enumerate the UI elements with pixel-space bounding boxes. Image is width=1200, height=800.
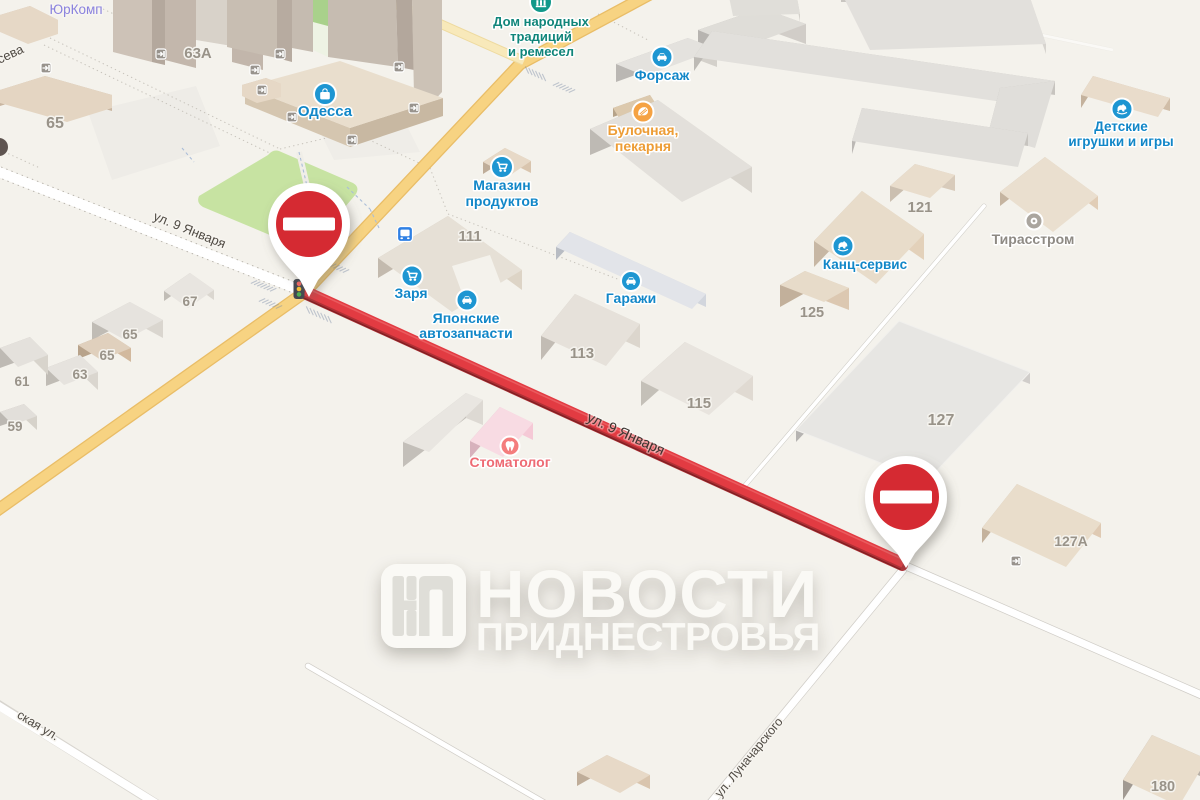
svg-text:автозапчасти: автозапчасти	[419, 325, 512, 341]
svg-text:игрушки и игры: игрушки и игры	[1068, 134, 1173, 149]
svg-text:121: 121	[907, 199, 932, 216]
svg-text:180: 180	[1151, 779, 1175, 795]
svg-text:59: 59	[7, 419, 22, 434]
svg-text:127А: 127А	[1054, 533, 1087, 549]
svg-text:Дом народных: Дом народных	[493, 14, 589, 29]
svg-text:ЮрКомп: ЮрКомп	[49, 2, 102, 17]
svg-text:Гаражи: Гаражи	[606, 290, 656, 306]
svg-text:традиций: традиций	[510, 29, 572, 44]
svg-text:Булочная,: Булочная,	[608, 122, 679, 138]
svg-text:67: 67	[182, 294, 197, 309]
svg-text:пекарня: пекарня	[615, 138, 671, 154]
svg-text:127: 127	[928, 412, 955, 429]
svg-text:Заря: Заря	[394, 285, 427, 301]
svg-text:125: 125	[800, 305, 824, 321]
svg-text:Стоматолог: Стоматолог	[469, 454, 550, 470]
svg-text:111: 111	[458, 228, 481, 245]
svg-text:Канц-сервис: Канц-сервис	[823, 257, 908, 272]
svg-text:65: 65	[46, 115, 64, 132]
svg-text:Японские: Японские	[433, 310, 500, 326]
svg-text:Магазин: Магазин	[473, 177, 530, 193]
svg-text:65: 65	[99, 348, 115, 363]
svg-text:115: 115	[687, 395, 711, 412]
svg-text:65: 65	[122, 327, 138, 342]
svg-text:Форсаж: Форсаж	[635, 67, 691, 83]
svg-text:113: 113	[570, 345, 594, 362]
svg-text:ПРИДНЕСТРОВЬЯ: ПРИДНЕСТРОВЬЯ	[476, 616, 820, 659]
svg-text:Тирасстром: Тирасстром	[992, 231, 1075, 247]
svg-text:63А: 63А	[184, 45, 212, 62]
svg-text:и ремесел: и ремесел	[508, 44, 574, 59]
svg-text:Одесса: Одесса	[298, 103, 353, 120]
svg-text:Детские: Детские	[1094, 119, 1148, 134]
svg-text:63: 63	[72, 367, 88, 382]
svg-text:61: 61	[14, 374, 30, 389]
svg-text:продуктов: продуктов	[465, 193, 538, 209]
